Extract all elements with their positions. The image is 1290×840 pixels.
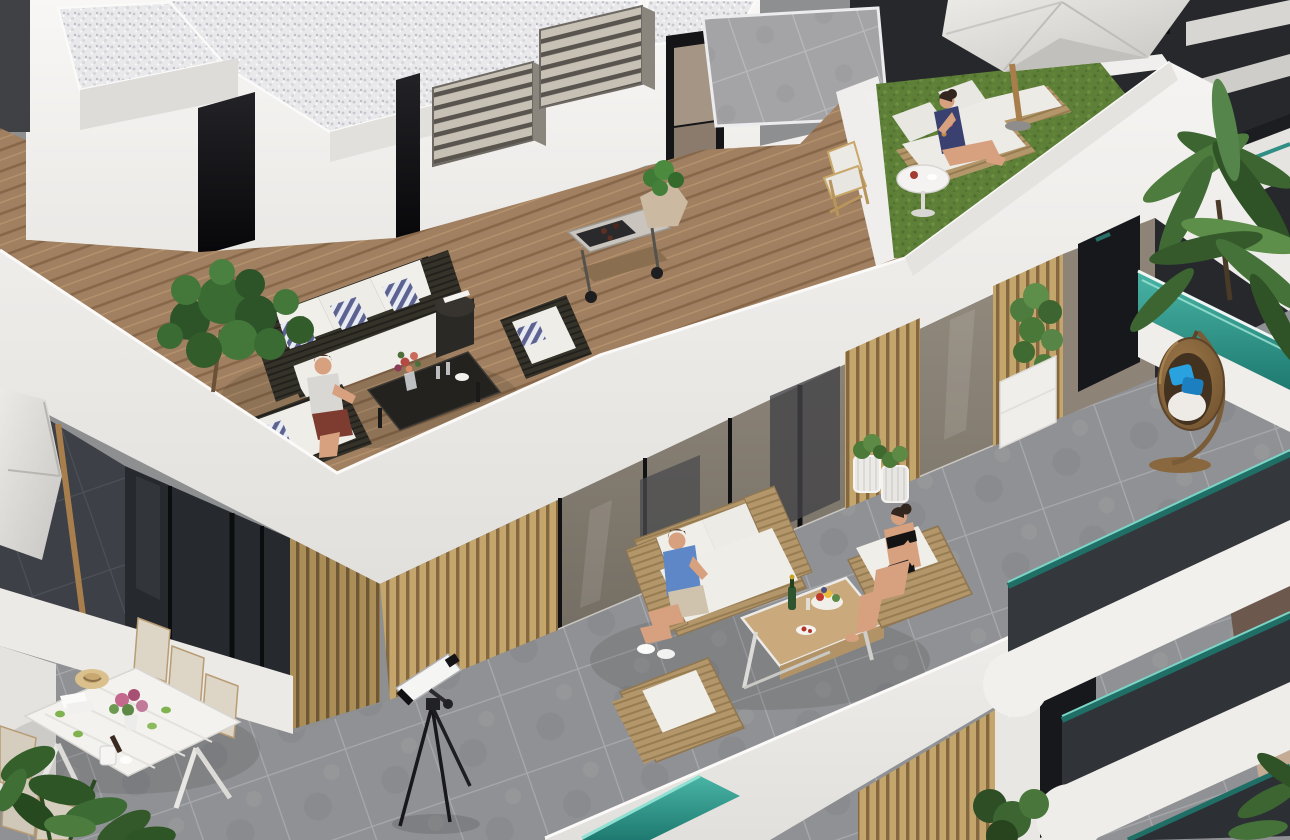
dessert: [910, 171, 918, 179]
deck-sliver-left: [0, 128, 26, 252]
sneaker: [637, 644, 655, 654]
glass: [446, 362, 450, 375]
far-left-dark-wall: [0, 0, 30, 132]
scene-svg: [0, 0, 1290, 840]
glass: [806, 598, 810, 610]
glass: [436, 366, 440, 379]
coffee-cup: [455, 373, 469, 381]
coffee-cup: [927, 174, 937, 180]
sneaker: [657, 649, 675, 659]
roof-doors: [396, 73, 420, 242]
rendering-canvas: [0, 0, 1290, 840]
parasol-base: [1005, 121, 1031, 131]
roof-doors: [198, 92, 255, 256]
